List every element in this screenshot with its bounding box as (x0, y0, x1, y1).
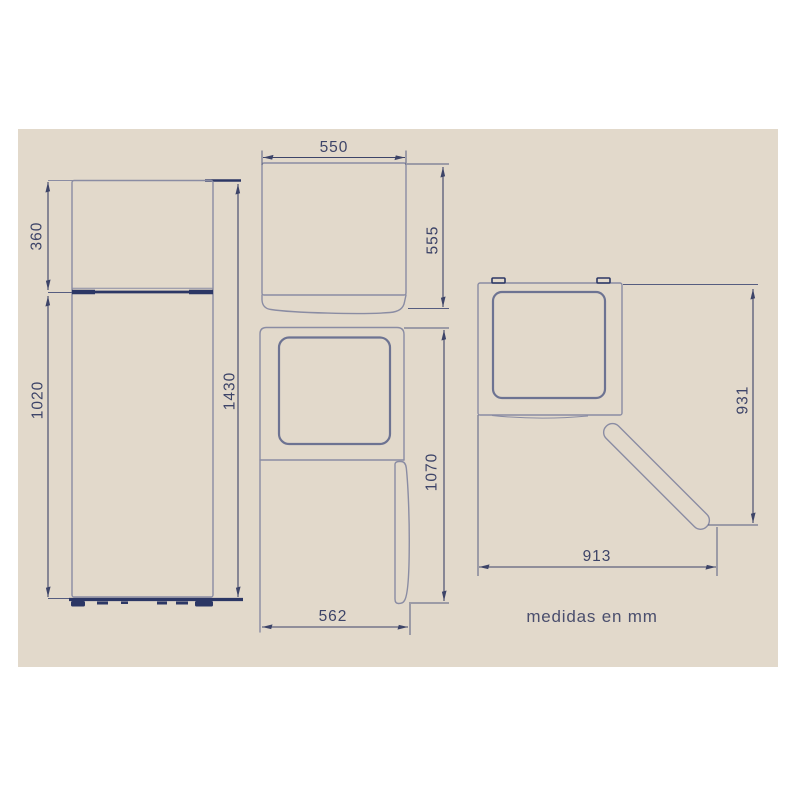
dim-label-total-height: 1430 (221, 372, 238, 410)
dim-label-side-height: 1070 (423, 453, 440, 491)
front-foot-right (195, 601, 213, 607)
diagram-panel (18, 129, 778, 667)
dim-label-side-depth: 562 (319, 608, 348, 625)
dim-label-depth: 555 (424, 226, 441, 255)
dim-label-width: 550 (320, 139, 349, 156)
front-base-notch (157, 602, 167, 605)
fridge-dimensions-diagram: 360 1020 1430 550 555 (0, 0, 800, 800)
units-note: medidas en mm (526, 607, 657, 626)
dimension-drawing-svg: 360 1020 1430 550 555 (0, 0, 800, 800)
dim-label-open-width: 913 (583, 548, 612, 565)
dim-label-open-depth: 931 (734, 386, 751, 415)
front-base-notch (121, 602, 128, 605)
dim-label-fridge-height: 1020 (29, 381, 46, 419)
dim-label-freezer-height: 360 (28, 222, 45, 251)
front-base-notch (97, 602, 108, 605)
front-base-notch (176, 602, 188, 605)
front-foot-left (71, 601, 85, 607)
